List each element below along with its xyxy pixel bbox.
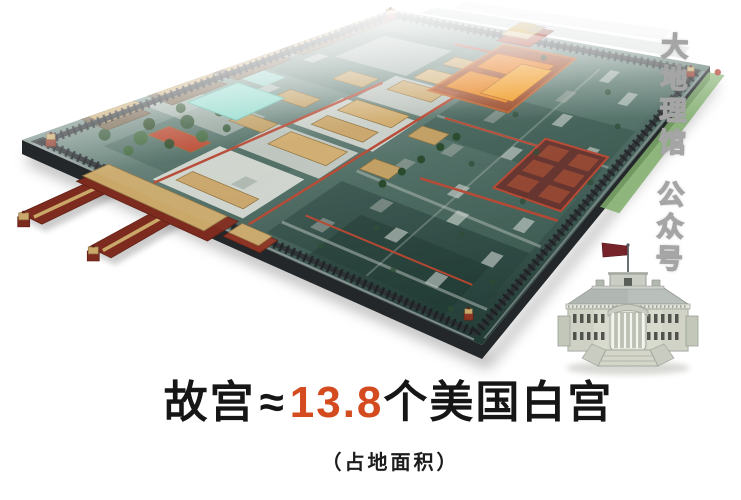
approx-symbol: ≈: [256, 378, 290, 427]
watermark-char: 公: [657, 182, 685, 210]
watermark-char: 众: [656, 214, 684, 242]
flag-cloth: [602, 243, 627, 257]
end-pavilion-left: [558, 316, 570, 346]
comparison-title: 故宫≈13.8个美国白宫: [0, 366, 741, 430]
title-comparison: 个美国白宫: [383, 378, 613, 427]
watermark-char: 地: [660, 66, 688, 94]
south-portico: [608, 305, 648, 353]
front-steps: [598, 350, 658, 366]
watermark-char: 号: [655, 246, 683, 274]
watermark-line1: 大地理馆: [658, 34, 688, 158]
comparison-basis-note: （占地面积）: [0, 446, 741, 475]
watermark-char: 馆: [658, 130, 686, 158]
watermark-char: 大: [661, 34, 689, 62]
title-subject: 故宫: [164, 378, 256, 427]
end-pavilion-right: [686, 316, 698, 346]
watermark-line2: 公众号: [655, 182, 684, 274]
watermark-wechat: 大地理馆 公众号: [647, 33, 697, 273]
watermark-char: 理: [659, 98, 687, 126]
ratio-value: 13.8: [290, 378, 384, 427]
